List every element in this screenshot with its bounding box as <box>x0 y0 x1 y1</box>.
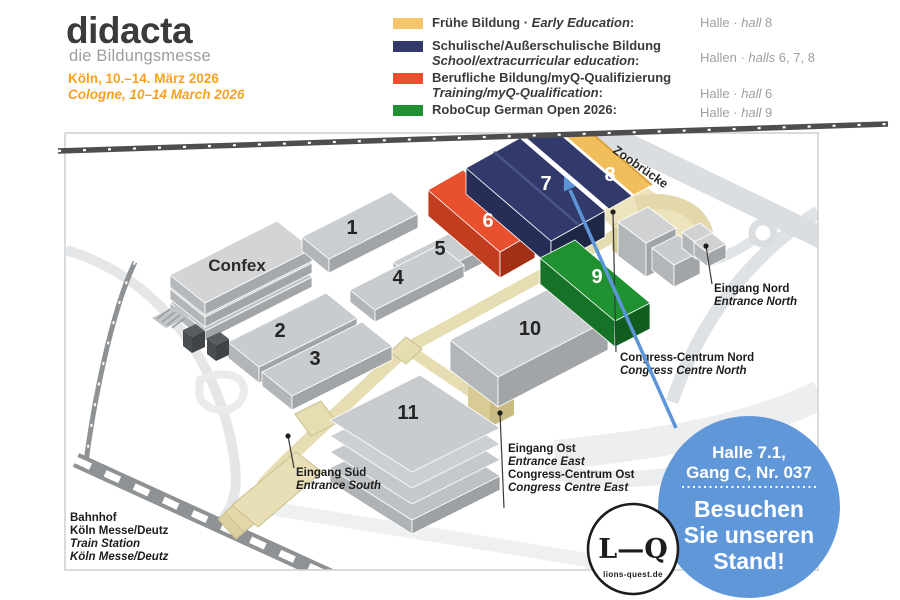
event-date-de: Köln, 10.–14. März 2026 <box>68 71 219 86</box>
svg-text:Entrance East: Entrance East <box>508 456 586 468</box>
eingang-sued-label: Eingang Süd <box>296 467 366 479</box>
legend-swatch-green <box>393 105 423 116</box>
congress-nord-label: Congress-Centrum Nord <box>620 352 754 364</box>
legend-item-training: Berufliche Bildung/myQ-Qualifizierung Tr… <box>393 70 671 100</box>
didacta-logo-subtitle: die Bildungsmesse <box>69 47 211 66</box>
svg-text:Sie unseren: Sie unseren <box>684 522 814 548</box>
svg-text:Besuchen: Besuchen <box>694 496 804 522</box>
eingang-nord-label: Eingang Nord <box>714 283 789 295</box>
legend-swatch-navy <box>393 41 423 52</box>
event-date-en: Cologne, 10–14 March 2026 <box>68 87 244 102</box>
legend-swatch-red <box>393 73 423 84</box>
hall-6-number: 6 <box>482 210 493 232</box>
svg-text:Stand!: Stand! <box>713 548 785 574</box>
confex-label: Confex <box>208 256 266 275</box>
svg-text:Train Station: Train Station <box>70 538 140 550</box>
hall-ref-school-education: Hallen · halls 6, 7, 8 <box>700 50 815 65</box>
lq-mark: L—Q <box>598 534 668 565</box>
stand-badge: Halle 7.1, Gang C, Nr. 037 Besuchen Sie … <box>658 416 840 598</box>
legend-item-robocup: RoboCup German Open 2026: <box>393 102 617 117</box>
hall-8-number: 8 <box>604 164 615 186</box>
hall-ref-robocup: Halle · hall 9 <box>700 105 772 120</box>
hall-2-number: 2 <box>274 320 285 342</box>
hall-4-number: 4 <box>392 267 404 289</box>
svg-text:Congress Centre North: Congress Centre North <box>620 365 747 377</box>
hall-1-number: 1 <box>346 217 357 239</box>
badge-hall-line: Halle 7.1, <box>712 443 786 462</box>
bahnhof-label: Bahnhof <box>70 512 117 524</box>
hall-10-number: 10 <box>519 318 541 340</box>
hall-ref-early-education: Halle · hall 8 <box>700 15 772 30</box>
legend-swatch-yellow <box>393 18 423 29</box>
didacta-logo: didacta <box>66 10 192 52</box>
lq-domain: lions-quest.de <box>603 570 663 579</box>
svg-text:Entrance North: Entrance North <box>714 296 797 308</box>
hall-11-number: 11 <box>397 402 418 424</box>
svg-text:Congress Centre East: Congress Centre East <box>508 482 629 494</box>
svg-text:Entrance South: Entrance South <box>296 480 381 492</box>
roundabout <box>752 222 774 244</box>
badge-stand-line: Gang C, Nr. 037 <box>686 463 812 482</box>
legend-item-school-education: Schulische/Außerschulische Bildung Schoo… <box>393 38 661 68</box>
svg-text:Congress-Centrum Ost: Congress-Centrum Ost <box>508 469 635 481</box>
eingang-ost-label: Eingang Ost <box>508 443 576 455</box>
didacta-fairground-map-flyer: Confex Zoobrücke 1 2 3 4 5 6 7 8 9 10 11… <box>0 0 900 600</box>
hall-3-number: 3 <box>309 348 320 370</box>
hall-ref-training: Halle · hall 6 <box>700 86 772 101</box>
hall-7-number: 7 <box>540 173 551 195</box>
legend-item-early-education: Frühe Bildung · Early Education: <box>393 15 634 30</box>
svg-text:Köln Messe/Deutz: Köln Messe/Deutz <box>70 551 169 563</box>
hall-5-number: 5 <box>434 238 445 260</box>
hall-9-number: 9 <box>591 266 602 288</box>
svg-text:Köln Messe/Deutz: Köln Messe/Deutz <box>70 525 169 537</box>
lions-quest-logo: L—Q lions-quest.de <box>588 504 678 594</box>
